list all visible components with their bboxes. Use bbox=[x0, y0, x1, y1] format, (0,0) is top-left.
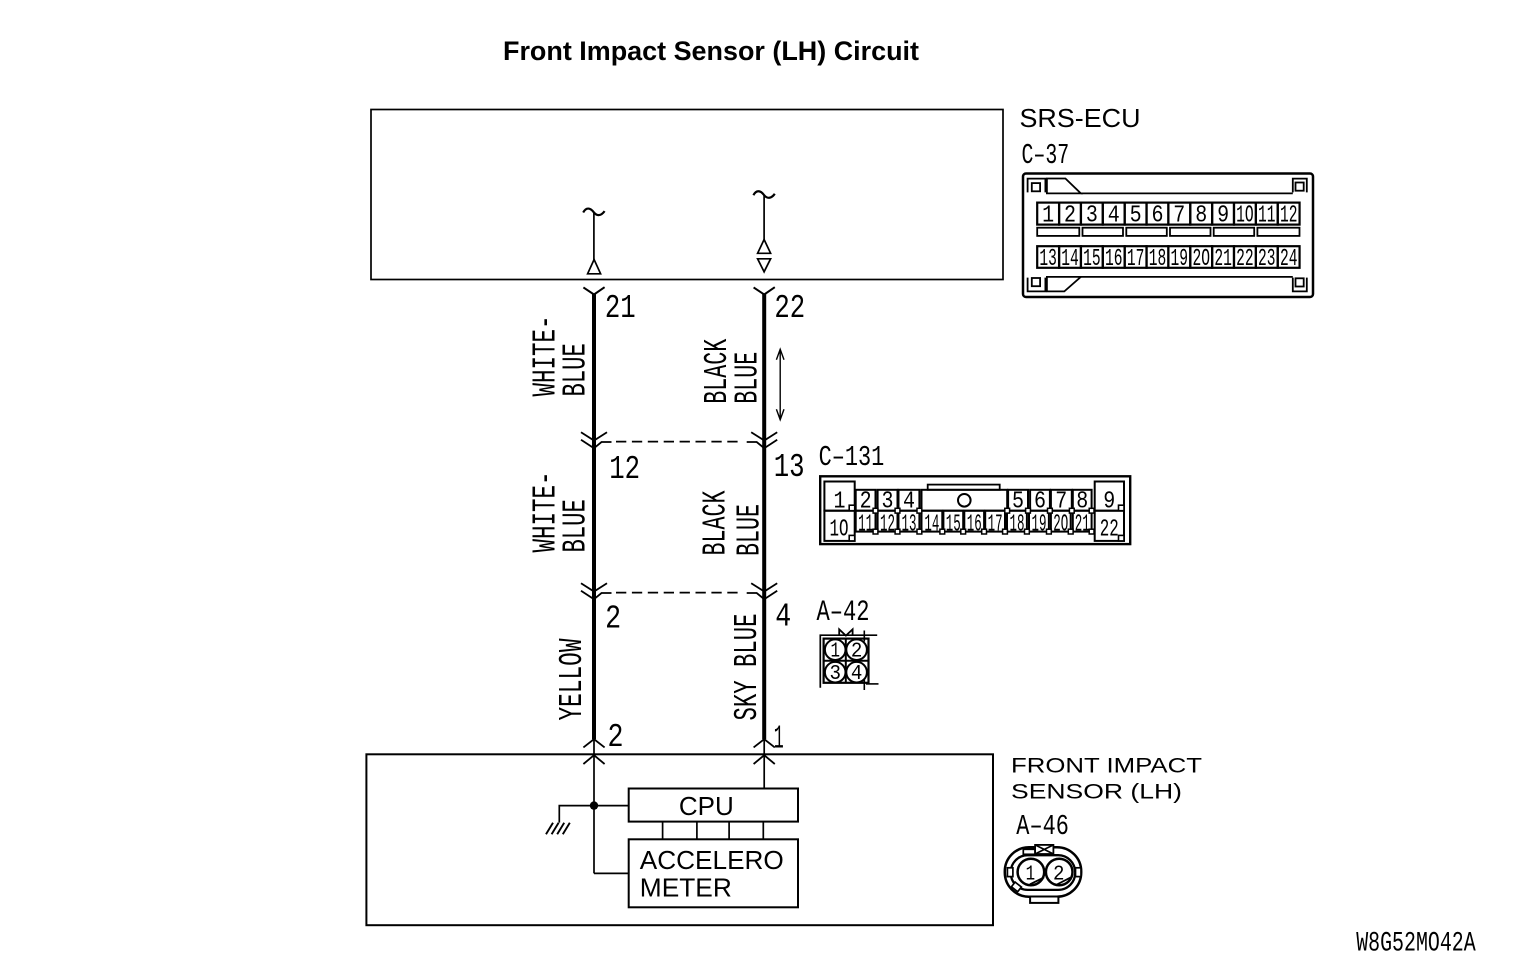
svg-text:BLUE: BLUE bbox=[731, 504, 768, 556]
svg-text:9: 9 bbox=[1103, 489, 1115, 516]
svg-text:YELLOW: YELLOW bbox=[554, 638, 591, 720]
svg-text:5: 5 bbox=[1130, 203, 1142, 230]
svg-text:C–37: C–37 bbox=[1022, 139, 1070, 172]
svg-text:C–131: C–131 bbox=[819, 441, 885, 474]
svg-text:3: 3 bbox=[829, 663, 841, 686]
svg-text:7: 7 bbox=[1173, 203, 1185, 230]
svg-text:2O: 2O bbox=[1192, 246, 1210, 273]
svg-text:11: 11 bbox=[1258, 203, 1276, 230]
svg-text:1O: 1O bbox=[830, 517, 849, 544]
svg-text:ACCELERO: ACCELERO bbox=[640, 847, 784, 875]
svg-text:BLUE: BLUE bbox=[557, 343, 594, 396]
svg-text:2: 2 bbox=[608, 719, 624, 756]
svg-text:1: 1 bbox=[1026, 863, 1036, 886]
svg-text:METER: METER bbox=[640, 874, 732, 902]
svg-text:15: 15 bbox=[946, 511, 961, 538]
svg-text:12: 12 bbox=[880, 511, 895, 538]
svg-text:4: 4 bbox=[851, 663, 863, 686]
svg-text:13: 13 bbox=[774, 449, 805, 486]
svg-text:BLACK: BLACK bbox=[697, 490, 734, 555]
svg-text:2: 2 bbox=[851, 641, 863, 664]
svg-text:8: 8 bbox=[1195, 203, 1207, 230]
svg-text:2: 2 bbox=[605, 601, 621, 638]
svg-text:13: 13 bbox=[1039, 246, 1057, 273]
svg-text:FRONT IMPACT: FRONT IMPACT bbox=[1011, 754, 1202, 778]
svg-text:13: 13 bbox=[902, 511, 917, 538]
svg-text:17: 17 bbox=[988, 511, 1003, 538]
svg-text:14: 14 bbox=[924, 511, 939, 538]
svg-text:4: 4 bbox=[775, 599, 791, 636]
svg-text:18: 18 bbox=[1010, 511, 1025, 538]
svg-text:1: 1 bbox=[830, 641, 840, 664]
svg-text:23: 23 bbox=[1258, 246, 1276, 273]
svg-text:1: 1 bbox=[834, 489, 846, 516]
svg-text:CPU: CPU bbox=[679, 791, 734, 821]
svg-text:W8G52MO42A: W8G52MO42A bbox=[1356, 928, 1476, 959]
svg-text:15: 15 bbox=[1083, 246, 1101, 273]
svg-text:9: 9 bbox=[1217, 203, 1229, 230]
svg-text:A–42: A–42 bbox=[817, 596, 870, 630]
svg-text:1O: 1O bbox=[1236, 203, 1254, 230]
svg-text:SKY BLUE: SKY BLUE bbox=[729, 614, 766, 721]
svg-text:19: 19 bbox=[1171, 246, 1189, 273]
svg-text:2: 2 bbox=[1053, 863, 1065, 886]
svg-text:22: 22 bbox=[1100, 517, 1119, 544]
svg-text:16: 16 bbox=[1105, 246, 1123, 273]
svg-text:19: 19 bbox=[1032, 511, 1047, 538]
svg-text:24: 24 bbox=[1280, 246, 1298, 273]
svg-text:A–46: A–46 bbox=[1016, 810, 1069, 843]
svg-text:BLUE: BLUE bbox=[557, 499, 594, 552]
svg-text:1: 1 bbox=[1042, 203, 1054, 230]
svg-text:18: 18 bbox=[1149, 246, 1167, 273]
svg-text:14: 14 bbox=[1061, 246, 1079, 273]
svg-text:21: 21 bbox=[605, 290, 636, 327]
svg-text:BLUE: BLUE bbox=[729, 352, 766, 404]
svg-text:17: 17 bbox=[1127, 246, 1145, 273]
svg-text:12: 12 bbox=[609, 451, 640, 488]
svg-text:6: 6 bbox=[1152, 203, 1164, 230]
svg-text:11: 11 bbox=[858, 511, 873, 538]
svg-text:12: 12 bbox=[1280, 203, 1298, 230]
svg-text:2: 2 bbox=[1064, 203, 1076, 230]
svg-text:22: 22 bbox=[1236, 246, 1254, 273]
svg-text:2O: 2O bbox=[1053, 511, 1068, 538]
svg-text:4: 4 bbox=[1108, 203, 1120, 230]
svg-text:22: 22 bbox=[774, 290, 805, 327]
svg-text:3: 3 bbox=[1086, 203, 1098, 230]
svg-text:SENSOR (LH): SENSOR (LH) bbox=[1011, 780, 1182, 804]
svg-text:16: 16 bbox=[967, 511, 982, 538]
svg-text:21: 21 bbox=[1075, 511, 1090, 538]
svg-text:SRS-ECU: SRS-ECU bbox=[1020, 105, 1141, 133]
svg-text:Front Impact Sensor (LH) Circu: Front Impact Sensor (LH) Circuit bbox=[503, 36, 919, 66]
svg-text:21: 21 bbox=[1214, 246, 1232, 273]
svg-text:1: 1 bbox=[774, 721, 784, 758]
